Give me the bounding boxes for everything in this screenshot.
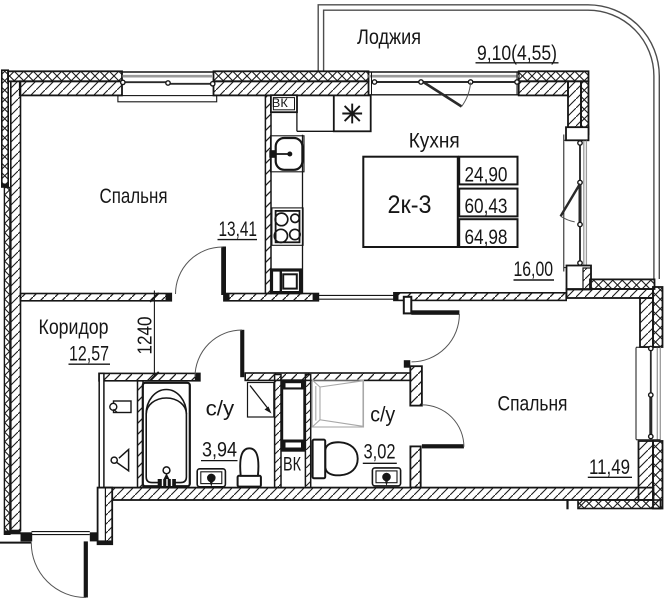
- svg-text:Кухня: Кухня: [409, 128, 460, 152]
- svg-text:9,10(4,55): 9,10(4,55): [477, 41, 557, 65]
- svg-text:12,57: 12,57: [69, 341, 109, 365]
- svg-text:Спальня: Спальня: [100, 184, 168, 208]
- svg-text:13,41: 13,41: [219, 218, 258, 241]
- svg-text:3,02: 3,02: [364, 440, 396, 464]
- svg-text:ВК: ВК: [283, 455, 301, 476]
- svg-text:3,94: 3,94: [202, 438, 237, 462]
- svg-text:с/у: с/у: [206, 397, 235, 421]
- svg-text:1240: 1240: [135, 317, 157, 355]
- svg-text:Лоджия: Лоджия: [357, 25, 421, 49]
- svg-text:Коридор: Коридор: [39, 315, 109, 339]
- svg-text:ВК: ВК: [272, 98, 288, 110]
- svg-text:11,49: 11,49: [589, 455, 630, 479]
- svg-text:64,98: 64,98: [465, 226, 508, 249]
- svg-text:2к-3: 2к-3: [388, 191, 432, 219]
- svg-text:24,90: 24,90: [465, 164, 508, 187]
- svg-text:с/у: с/у: [370, 403, 395, 427]
- svg-text:60,43: 60,43: [465, 195, 508, 218]
- svg-text:16,00: 16,00: [514, 257, 554, 281]
- svg-text:Спальня: Спальня: [498, 392, 568, 416]
